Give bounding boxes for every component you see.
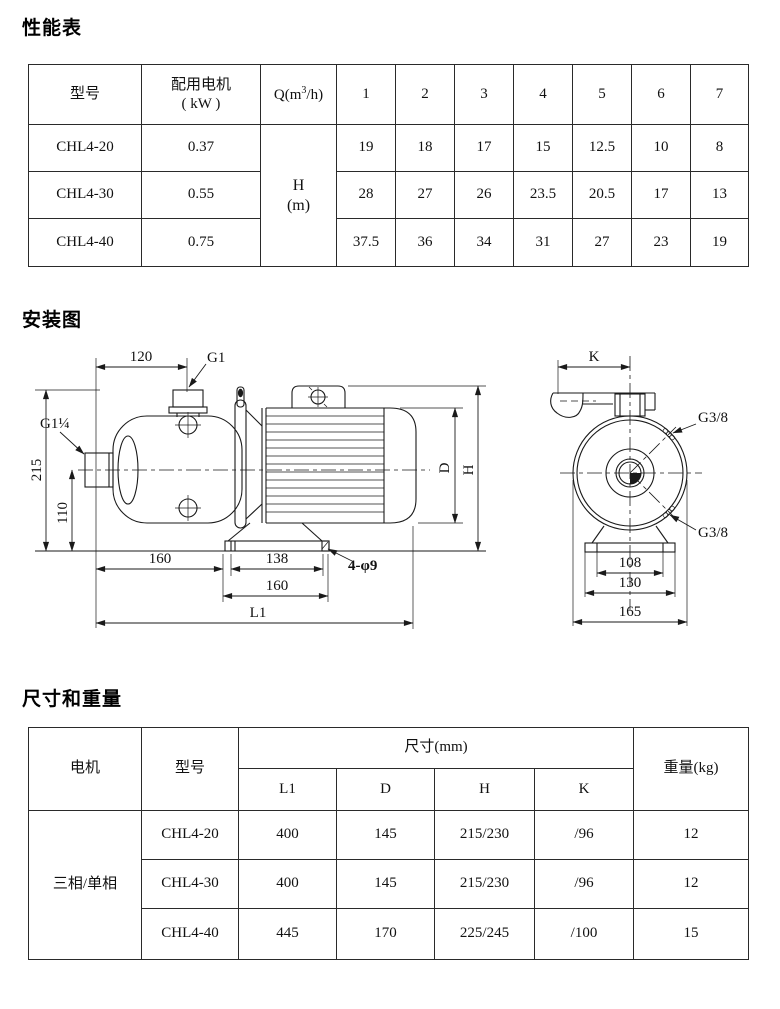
performance-section-title: 性能表 (22, 13, 82, 40)
dim-120-label: 120 (130, 349, 153, 365)
g38-top-label: G3/8 (698, 410, 728, 426)
dims-motor-type-cell: 三相/单相 (29, 811, 142, 960)
dimensions-section-title: 尺寸和重量 (22, 684, 122, 711)
pump-side-view-drawing: 120 G1 G1¼ 215 110 160 138 160 L1 4-φ9 D… (30, 330, 530, 642)
perf-header-q3: 3 (455, 65, 514, 125)
discharge-port-label: G1 (207, 350, 225, 366)
perf-model-cell: CHL4-30 (29, 172, 142, 219)
dims-weight-cell: 15 (634, 909, 749, 960)
perf-value: 12.5 (573, 125, 632, 172)
pump-base (225, 523, 329, 551)
holes-callout-label: 4-φ9 (348, 558, 377, 574)
perf-value: 28 (337, 172, 396, 219)
dims-value: 225/245 (435, 909, 535, 960)
perf-header-q1: 1 (337, 65, 396, 125)
head-symbol: H (261, 176, 336, 196)
perf-value: 17 (632, 172, 691, 219)
perf-value: 36 (396, 219, 455, 267)
perf-power-cell: 0.55 (142, 172, 261, 219)
perf-header-row: 型号 配用电机 ( kW ) Q(m3/h) 1 2 3 4 5 6 7 (29, 65, 749, 125)
perf-header-motor-line1: 配用电机 (142, 76, 260, 95)
perf-header-q6: 6 (632, 65, 691, 125)
dims-value: 445 (239, 909, 337, 960)
flow-unit-prefix: Q(m (274, 87, 302, 103)
dims-value: 145 (337, 811, 435, 860)
perf-value: 37.5 (337, 219, 396, 267)
dims-value: /96 (535, 811, 634, 860)
table-row: CHL4-40 0.75 37.5 36 34 31 27 23 19 (29, 219, 749, 267)
front-dimensions: K G3/8 G3/8 108 130 165 (558, 349, 728, 622)
datasheet-page: 性能表 型号 配用电机 ( kW ) Q(m3/h) 1 2 3 4 5 6 7… (0, 0, 780, 1009)
dims-header-row-1: 电机 型号 尺寸(mm) 重量(kg) (29, 728, 749, 769)
perf-power-cell: 0.75 (142, 219, 261, 267)
dims-weight-cell: 12 (634, 811, 749, 860)
perf-value: 19 (337, 125, 396, 172)
table-row: CHL4-30 0.55 28 27 26 23.5 20.5 17 13 (29, 172, 749, 219)
dims-weight-cell: 12 (634, 860, 749, 909)
head-unit: (m) (261, 196, 336, 216)
perf-value: 18 (396, 125, 455, 172)
perf-value: 17 (455, 125, 514, 172)
suction-port-label: G1¼ (40, 416, 70, 432)
perf-value: 27 (396, 172, 455, 219)
motor (262, 386, 416, 523)
dim-165-label: 165 (619, 604, 642, 620)
perf-value: 23 (632, 219, 691, 267)
perf-value: 34 (455, 219, 514, 267)
perf-header-q4: 4 (514, 65, 573, 125)
dims-model-cell: CHL4-40 (142, 909, 239, 960)
flow-unit-suffix: /h) (306, 87, 323, 103)
dim-130-label: 130 (619, 575, 642, 591)
dims-subheader-d: D (337, 769, 435, 811)
dims-header-motor: 电机 (29, 728, 142, 811)
terminal-screw-icon (308, 387, 328, 407)
dims-header-model: 型号 (142, 728, 239, 811)
g38-bottom-label: G3/8 (698, 525, 728, 541)
installation-section-title: 安装图 (22, 305, 82, 332)
dims-header-size: 尺寸(mm) (239, 728, 634, 769)
clamp-band (235, 400, 246, 528)
dim-160b-label: 160 (266, 578, 289, 594)
dims-value: 215/230 (435, 811, 535, 860)
perf-model-cell: CHL4-20 (29, 125, 142, 172)
dim-d-label: D (437, 462, 453, 473)
perf-header-motor: 配用电机 ( kW ) (142, 65, 261, 125)
pump-front-view-drawing: K G3/8 G3/8 108 130 165 (540, 330, 760, 642)
pump-casing (85, 387, 262, 528)
mounting-bracket (551, 393, 655, 417)
perf-value: 8 (691, 125, 749, 172)
dims-value: /100 (535, 909, 634, 960)
side-extension-lines (35, 358, 486, 629)
perf-header-q5: 5 (573, 65, 632, 125)
dim-160a-label: 160 (149, 551, 172, 567)
dims-subheader-k: K (535, 769, 634, 811)
dim-k-label: K (589, 349, 600, 365)
dim-108-label: 108 (619, 555, 642, 571)
perf-model-cell: CHL4-40 (29, 219, 142, 267)
perf-value: 13 (691, 172, 749, 219)
perf-value: 19 (691, 219, 749, 267)
dims-header-weight: 重量(kg) (634, 728, 749, 811)
dims-subheader-l1: L1 (239, 769, 337, 811)
perf-value: 20.5 (573, 172, 632, 219)
dims-value: 215/230 (435, 860, 535, 909)
dim-l1-label: L1 (250, 605, 267, 621)
perf-value: 31 (514, 219, 573, 267)
perf-header-q7: 7 (691, 65, 749, 125)
perf-power-cell: 0.37 (142, 125, 261, 172)
performance-table: 型号 配用电机 ( kW ) Q(m3/h) 1 2 3 4 5 6 7 CHL… (28, 64, 749, 267)
motor-fins (266, 416, 384, 512)
table-row: 三相/单相 CHL4-20 400 145 215/230 /96 12 (29, 811, 749, 860)
perf-value: 23.5 (514, 172, 573, 219)
perf-header-flow: Q(m3/h) (261, 65, 337, 125)
perf-value: 27 (573, 219, 632, 267)
perf-value: 26 (455, 172, 514, 219)
dims-value: 170 (337, 909, 435, 960)
dim-h-label: H (461, 464, 477, 475)
perf-value: 15 (514, 125, 573, 172)
dims-value: 400 (239, 811, 337, 860)
dim-215-label: 215 (30, 459, 45, 482)
table-row: CHL4-20 0.37 H (m) 19 18 17 15 12.5 10 8 (29, 125, 749, 172)
dims-value: 400 (239, 860, 337, 909)
dim-110-label: 110 (55, 502, 71, 524)
dims-model-cell: CHL4-30 (142, 860, 239, 909)
dims-value: /96 (535, 860, 634, 909)
dims-subheader-h: H (435, 769, 535, 811)
perf-head-unit-cell: H (m) (261, 125, 337, 267)
perf-header-q2: 2 (396, 65, 455, 125)
perf-value: 10 (632, 125, 691, 172)
perf-header-model: 型号 (29, 65, 142, 125)
perf-header-motor-line2: ( kW ) (142, 95, 260, 114)
dim-138-label: 138 (266, 551, 289, 567)
dims-model-cell: CHL4-20 (142, 811, 239, 860)
dimensions-table: 电机 型号 尺寸(mm) 重量(kg) L1 D H K 三相/单相 CHL4-… (28, 727, 749, 960)
dims-value: 145 (337, 860, 435, 909)
